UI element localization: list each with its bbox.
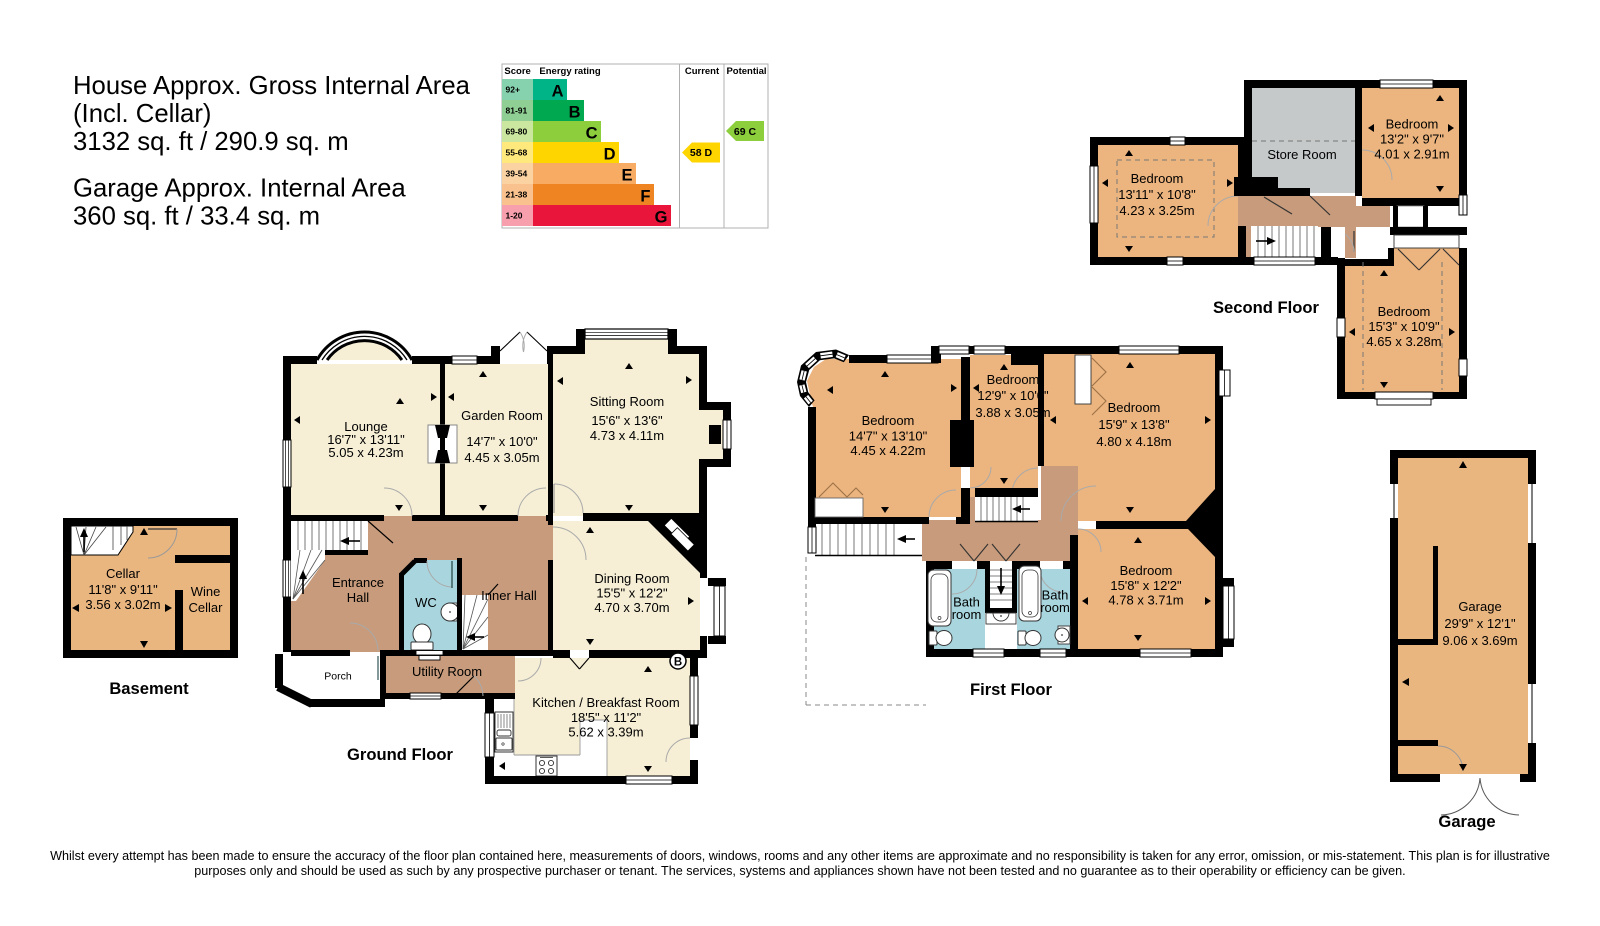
svg-text:Bedroom: Bedroom xyxy=(1120,563,1173,578)
svg-text:B: B xyxy=(674,657,682,669)
svg-text:Bedroom: Bedroom xyxy=(862,413,915,428)
svg-text:Cellar: Cellar xyxy=(189,600,224,615)
svg-text:81-91: 81-91 xyxy=(506,106,528,116)
svg-text:9.06 x 3.69m: 9.06 x 3.69m xyxy=(1442,633,1517,648)
svg-text:Garden Room: Garden Room xyxy=(461,408,543,423)
svg-text:Garage Approx. Internal Area: Garage Approx. Internal Area xyxy=(73,175,406,203)
svg-text:First Floor: First Floor xyxy=(970,680,1053,699)
svg-text:13'11" x 10'8": 13'11" x 10'8" xyxy=(1118,187,1196,202)
svg-text:15'6" x 13'6": 15'6" x 13'6" xyxy=(591,413,663,428)
svg-text:E: E xyxy=(621,167,632,185)
svg-text:15'3" x 10'9": 15'3" x 10'9" xyxy=(1368,319,1440,334)
svg-text:69 C: 69 C xyxy=(734,126,757,138)
svg-text:29'9" x 12'1": 29'9" x 12'1" xyxy=(1444,616,1516,631)
svg-text:Wine: Wine xyxy=(191,584,221,599)
svg-text:Bedroom: Bedroom xyxy=(987,372,1040,387)
svg-text:4.01 x 2.91m: 4.01 x 2.91m xyxy=(1374,147,1449,162)
svg-text:Store Room: Store Room xyxy=(1267,147,1336,162)
svg-text:3.88 x 3.05m: 3.88 x 3.05m xyxy=(975,405,1050,420)
svg-text:Garage: Garage xyxy=(1438,812,1495,831)
svg-text:Bedroom: Bedroom xyxy=(1131,171,1184,186)
svg-text:Garage: Garage xyxy=(1458,599,1501,614)
svg-text:4.45 x 4.22m: 4.45 x 4.22m xyxy=(850,443,925,458)
svg-text:3.56 x 3.02m: 3.56 x 3.02m xyxy=(85,597,160,612)
svg-text:Kitchen / Breakfast Room: Kitchen / Breakfast Room xyxy=(532,695,679,710)
svg-text:(Incl. Cellar): (Incl. Cellar) xyxy=(73,100,211,128)
svg-text:14'7" x 10'0": 14'7" x 10'0" xyxy=(466,434,538,449)
svg-text:Inner Hall: Inner Hall xyxy=(481,588,537,603)
svg-text:Bedroom: Bedroom xyxy=(1386,117,1439,132)
svg-text:B: B xyxy=(569,104,581,122)
svg-text:12'9" x 10'0": 12'9" x 10'0" xyxy=(977,388,1049,403)
svg-text:C: C xyxy=(586,125,598,143)
svg-text:21-38: 21-38 xyxy=(506,190,528,200)
svg-text:4.45 x 3.05m: 4.45 x 3.05m xyxy=(464,450,539,465)
svg-text:A: A xyxy=(552,83,564,101)
svg-text:5.62 x 3.39m: 5.62 x 3.39m xyxy=(568,725,643,740)
svg-text:11'8" x 9'11": 11'8" x 9'11" xyxy=(88,582,158,597)
svg-text:360 sq. ft / 33.4 sq. m: 360 sq. ft / 33.4 sq. m xyxy=(73,203,320,231)
svg-text:F: F xyxy=(640,188,650,206)
svg-text:Dining Room: Dining Room xyxy=(594,571,669,586)
svg-text:Cellar: Cellar xyxy=(106,566,141,581)
svg-text:5.05 x 4.23m: 5.05 x 4.23m xyxy=(328,445,403,460)
svg-text:G: G xyxy=(655,209,668,227)
svg-text:15'9" x 13'8": 15'9" x 13'8" xyxy=(1098,417,1170,432)
svg-text:4.80 x 4.18m: 4.80 x 4.18m xyxy=(1096,434,1171,449)
svg-text:room: room xyxy=(1040,600,1070,615)
svg-text:Ground Floor: Ground Floor xyxy=(347,745,454,764)
svg-text:Basement: Basement xyxy=(109,679,189,698)
svg-text:House Approx. Gross Internal A: House Approx. Gross Internal Area xyxy=(73,72,471,100)
svg-text:1-20: 1-20 xyxy=(506,211,523,221)
svg-text:58 D: 58 D xyxy=(690,147,713,159)
svg-text:Hall: Hall xyxy=(347,590,370,605)
svg-text:Sitting Room: Sitting Room xyxy=(590,394,664,409)
svg-text:4.65 x 3.28m: 4.65 x 3.28m xyxy=(1366,334,1441,349)
svg-text:Utility Room: Utility Room xyxy=(412,664,482,679)
svg-text:4.70 x 3.70m: 4.70 x 3.70m xyxy=(594,600,669,615)
svg-text:D: D xyxy=(604,146,616,164)
svg-text:Bedroom: Bedroom xyxy=(1108,400,1161,415)
svg-text:13'2" x 9'7": 13'2" x 9'7" xyxy=(1380,132,1444,147)
svg-text:Score: Score xyxy=(504,66,530,77)
svg-text:69-80: 69-80 xyxy=(506,127,528,137)
svg-text:purposes only and should be us: purposes only and should be used as such… xyxy=(194,864,1405,878)
svg-text:Energy rating: Energy rating xyxy=(539,66,600,77)
svg-text:Second Floor: Second Floor xyxy=(1213,298,1320,317)
svg-text:3132 sq. ft / 290.9 sq. m: 3132 sq. ft / 290.9 sq. m xyxy=(73,128,349,156)
svg-text:Whilst every attempt has been: Whilst every attempt has been made to en… xyxy=(50,849,1550,863)
svg-text:92+: 92+ xyxy=(506,85,520,95)
svg-text:WC: WC xyxy=(415,595,437,610)
svg-text:55-68: 55-68 xyxy=(506,148,528,158)
svg-text:4.73 x 4.11m: 4.73 x 4.11m xyxy=(590,428,664,443)
svg-text:15'8" x 12'2": 15'8" x 12'2" xyxy=(1110,578,1182,593)
svg-text:Bedroom: Bedroom xyxy=(1378,304,1431,319)
svg-text:4.78 x 3.71m: 4.78 x 3.71m xyxy=(1108,593,1183,608)
svg-text:18'5" x 11'2": 18'5" x 11'2" xyxy=(571,710,642,725)
svg-text:Current: Current xyxy=(685,66,720,77)
svg-text:room: room xyxy=(952,607,982,622)
svg-text:Potential: Potential xyxy=(726,66,766,77)
svg-text:4.23 x 3.25m: 4.23 x 3.25m xyxy=(1119,203,1194,218)
svg-text:15'5" x 12'2": 15'5" x 12'2" xyxy=(596,586,668,601)
svg-text:39-54: 39-54 xyxy=(506,169,528,179)
svg-text:14'7" x 13'10": 14'7" x 13'10" xyxy=(849,429,928,444)
svg-text:Entrance: Entrance xyxy=(332,575,384,590)
svg-text:Porch: Porch xyxy=(324,671,352,683)
